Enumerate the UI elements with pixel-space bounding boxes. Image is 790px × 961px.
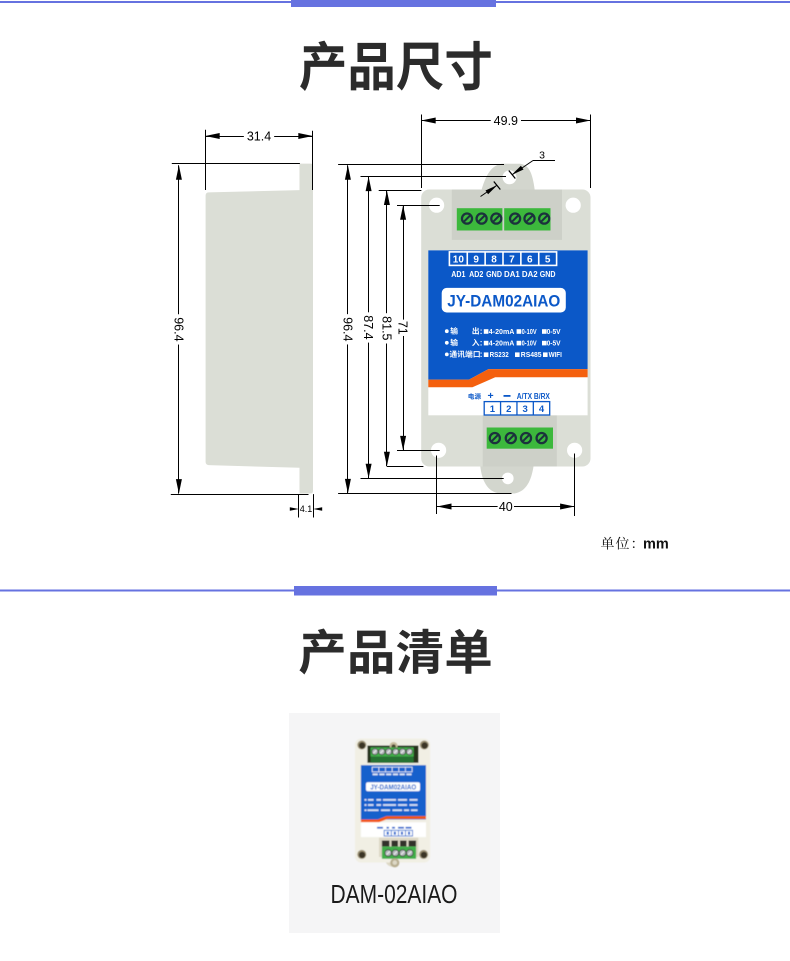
svg-text:71: 71 [396, 321, 410, 335]
svg-text:0-10V: 0-10V [522, 327, 537, 336]
svg-text:A/TX B/RX: A/TX B/RX [517, 392, 551, 401]
svg-text:4: 4 [539, 404, 545, 415]
svg-text:96.4: 96.4 [340, 317, 354, 341]
svg-text:9: 9 [473, 254, 479, 265]
svg-text:7: 7 [509, 254, 515, 265]
svg-text:JY-DAM02AIAO: JY-DAM02AIAO [370, 785, 416, 792]
svg-text:DA2: DA2 [522, 269, 538, 279]
svg-text:RS232: RS232 [490, 350, 509, 359]
svg-text:4.1: 4.1 [300, 504, 313, 514]
svg-text::: : [480, 350, 483, 359]
svg-text:96.4: 96.4 [171, 317, 185, 341]
svg-text:+: + [488, 390, 494, 402]
svg-text:DAM-02AIAO: DAM-02AIAO [331, 879, 458, 909]
svg-text:AD2: AD2 [469, 269, 483, 279]
svg-text:1: 1 [490, 404, 496, 415]
svg-text:0-5V: 0-5V [547, 338, 561, 347]
svg-text:31.4: 31.4 [247, 130, 271, 144]
svg-text:4-20mA: 4-20mA [489, 327, 515, 336]
svg-text:8: 8 [491, 254, 497, 265]
svg-text:3: 3 [522, 404, 527, 415]
svg-text:AD1: AD1 [451, 269, 465, 279]
svg-text::: : [480, 338, 483, 347]
svg-text:DA1: DA1 [504, 269, 520, 279]
svg-text:81.5: 81.5 [379, 316, 393, 340]
svg-text:RS485: RS485 [521, 350, 542, 359]
svg-text:0-10V: 0-10V [522, 338, 537, 347]
svg-text:40: 40 [499, 500, 513, 514]
svg-text:0-5V: 0-5V [547, 327, 561, 336]
svg-text:3: 3 [539, 150, 545, 162]
svg-text:2: 2 [506, 404, 511, 415]
svg-text:5: 5 [545, 254, 551, 265]
svg-text:49.9: 49.9 [494, 114, 518, 128]
svg-text:GND: GND [540, 269, 556, 279]
svg-text:6: 6 [527, 254, 533, 265]
svg-text:87.4: 87.4 [361, 315, 375, 339]
svg-text:GND: GND [486, 269, 502, 279]
svg-text:WIFI: WIFI [549, 350, 562, 359]
svg-text:4-20mA: 4-20mA [489, 338, 515, 347]
svg-text:10: 10 [453, 254, 465, 265]
svg-text:mm: mm [643, 537, 669, 553]
svg-text::: : [480, 327, 483, 336]
svg-text:JY-DAM02AIAO: JY-DAM02AIAO [447, 291, 560, 310]
